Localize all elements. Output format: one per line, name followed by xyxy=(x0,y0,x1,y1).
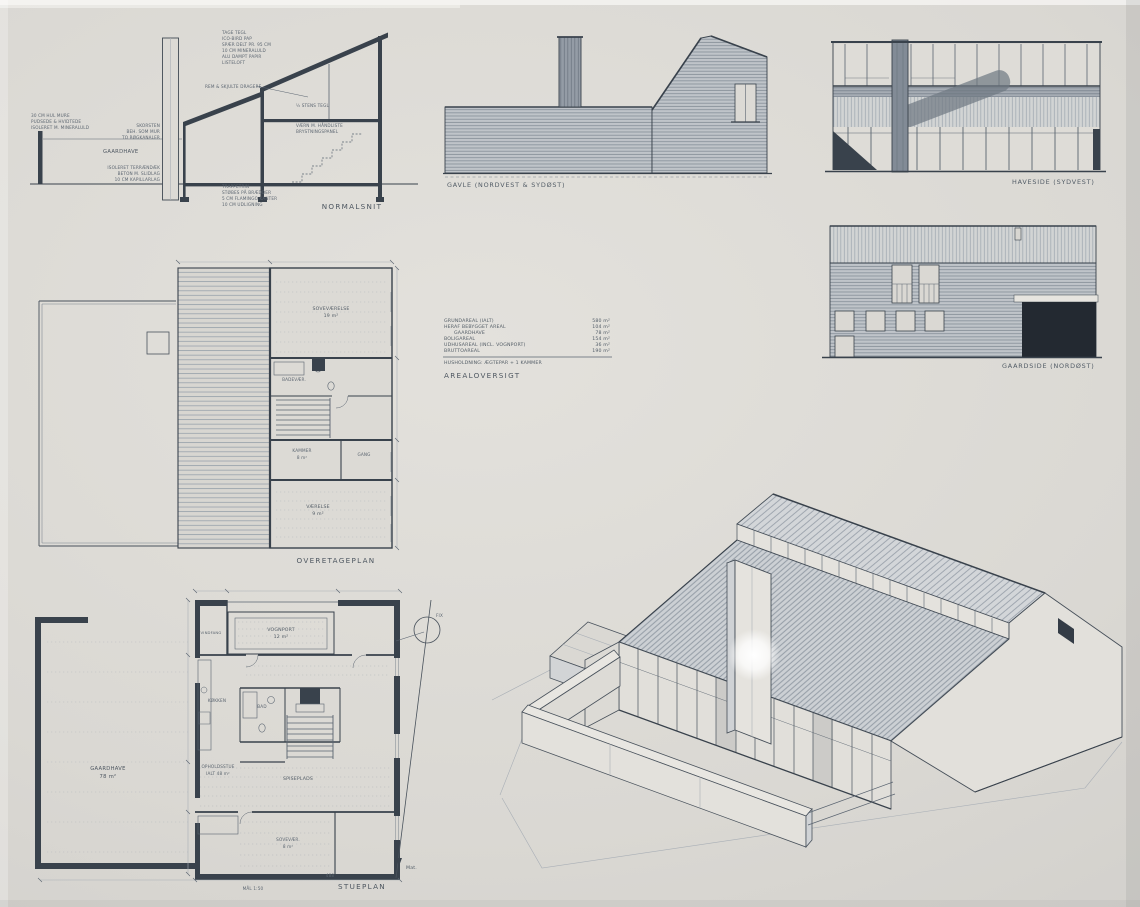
wardrobe xyxy=(198,816,238,834)
note-chimney-1: SKORSTEN xyxy=(136,123,160,128)
table-row: BRUTTOAREAL 190 m² xyxy=(444,348,610,354)
note-stair-1: TRAPPETRIN xyxy=(221,184,249,189)
drawing-title-gavle: GAVLE (NORDVEST & SYDØST) xyxy=(447,181,565,189)
note-leftwall-3: ISOLERET M. MINERALULD xyxy=(31,125,89,130)
note-roof-4: 10 CM MINERALULD xyxy=(222,48,266,53)
chimney-plan-upper xyxy=(312,359,325,371)
svg-text:19 m²: 19 m² xyxy=(324,313,339,319)
svg-text:580 m²: 580 m² xyxy=(592,318,610,324)
svg-text:GAARDHAVE: GAARDHAVE xyxy=(454,330,485,336)
scale-note: MÅL 1:50 xyxy=(243,886,264,891)
room-koekken: KØKKEN xyxy=(208,698,226,703)
svg-text:78 m²: 78 m² xyxy=(100,774,117,780)
floor-plan-stue: GAARDHAVE 78 m² VOGNPORT 12 m² VINDFANG … xyxy=(35,589,443,891)
room-spiseplads: SPISEPLADS xyxy=(283,776,313,782)
toilet-stue xyxy=(259,724,265,732)
svg-text:36 m²: 36 m² xyxy=(595,342,610,348)
roof-plan-band xyxy=(178,268,270,548)
section-drawing-normalsnit: TAGE TEGL ICO-BIRD PAP SPÆR DELT PR. 95 … xyxy=(30,30,418,211)
note-stair-2: STØBES PÅ BRÆDDER xyxy=(222,190,271,195)
svg-text:IALT 48 m²: IALT 48 m² xyxy=(206,771,230,776)
note-leftwall-2: PUDSEDE & HVIDTEDE xyxy=(31,119,81,124)
note-chimney-3: TO RØGKANALER xyxy=(121,135,160,140)
table-row: GAARDHAVE 78 m² xyxy=(454,330,610,336)
note-floor-3: 10 CM KAPILLARLAG xyxy=(115,177,160,182)
note-chimney-2: BEH. SOM MUR xyxy=(126,129,160,134)
board-svg: TAGE TEGL ICO-BIRD PAP SPÆR DELT PR. 95 … xyxy=(0,0,1140,907)
svg-text:104 m²: 104 m² xyxy=(592,324,610,330)
note-parapet-1: VÆRN M. HÅNDLISTE xyxy=(296,123,343,128)
stair-dashed-section xyxy=(292,134,362,182)
note-stair-3: 5 CM FLAMINGO KANTER xyxy=(222,196,277,201)
dimension-total: 488 xyxy=(326,873,335,878)
elevation-gavle: GAVLE (NORDVEST & SYDØST) xyxy=(443,36,772,189)
stair-treads-stue xyxy=(287,717,333,757)
note-floor-2: BETON M. SLIDLAG xyxy=(118,171,160,176)
note-roof-6: LISTELOFT xyxy=(222,60,245,65)
svg-text:BRUTTOAREAL: BRUTTOAREAL xyxy=(444,348,480,354)
room-badevaerelse: BADEVÆR. xyxy=(282,377,306,382)
gavle-low-wing xyxy=(445,107,652,173)
gaardside-upper-band xyxy=(830,226,1096,263)
room-kammer: KAMMER xyxy=(292,448,311,453)
table-row: HERAF BEBYGGET AREAL 104 m² xyxy=(444,324,610,330)
svg-text:8 m²: 8 m² xyxy=(297,455,308,460)
note-roof-3: SPÆR DELT PR. 95 CM xyxy=(222,42,271,47)
room-bad: BAD xyxy=(257,704,266,709)
elevation-gaardside: GAARDSIDE (NORDØST) xyxy=(822,226,1102,370)
svg-text:HERAF BEBYGGET AREAL: HERAF BEBYGGET AREAL xyxy=(444,324,506,330)
svg-text:BOLIGAREAL: BOLIGAREAL xyxy=(444,336,475,342)
note-leftwall-1: 30 CM HUL MURE xyxy=(31,113,70,118)
shower xyxy=(243,692,257,718)
note-roof-2: ICO-BIRD PAP xyxy=(222,36,252,41)
table-note: HUSHOLDNING: ÆGTEPAR + 1 KAMMER xyxy=(444,360,542,366)
room-vaerelse: VÆRELSE xyxy=(306,504,330,510)
section-annotations: TAGE TEGL ICO-BIRD PAP SPÆR DELT PR. 95 … xyxy=(31,30,343,207)
room-sovevaer: SOVEVÆR. xyxy=(276,837,300,842)
note-roof-5: ALU DAMPT PAPIR xyxy=(222,54,261,59)
drawing-title-overetageplan: OVERETAGEPLAN xyxy=(297,556,376,565)
drawing-title-gaardside: GAARDSIDE (NORDØST) xyxy=(1002,362,1095,370)
area-table: GRUNDAREAL (IALT) 580 m² HERAF BEBYGGET … xyxy=(443,318,612,380)
drawing-title-arealoversigt: AREALOVERSIGT xyxy=(444,371,520,380)
haveside-chimney xyxy=(892,40,908,172)
room-gaardhave: GAARDHAVE xyxy=(90,766,126,772)
carport-opening xyxy=(1022,302,1096,357)
fireplace-chimney-plan xyxy=(300,688,320,704)
room-opholdsstue: OPHOLDSSTUE xyxy=(201,764,234,769)
drawing-title-normalsnit: NORMALSNIT xyxy=(322,202,383,211)
table-row: GRUNDAREAL (IALT) 580 m² xyxy=(444,318,610,324)
room-gang: GANG xyxy=(357,452,370,457)
table-row: UDHUSAREAL (INCL. VOGNPORT) 36 m² xyxy=(444,342,610,348)
haveside-upper-windows xyxy=(833,44,1100,86)
drawing-title-stueplan: STUEPLAN xyxy=(338,882,386,891)
label-gaardhave-section: GAARDHAVE xyxy=(103,149,139,155)
svg-text:9 m²: 9 m² xyxy=(312,511,324,517)
drawing-title-haveside: HAVESIDE (SYDVEST) xyxy=(1012,178,1095,186)
svg-text:8 m²: 8 m² xyxy=(283,844,294,849)
courtyard-planter xyxy=(147,332,169,354)
note-roof-1: TAGE TEGL xyxy=(221,30,247,35)
architectural-presentation-board: TAGE TEGL ICO-BIRD PAP SPÆR DELT PR. 95 … xyxy=(0,0,1140,907)
svg-text:190 m²: 190 m² xyxy=(592,348,610,354)
fixpoint-label: FIX xyxy=(436,613,443,618)
room-vognport: VOGNPORT xyxy=(267,627,294,633)
gaardside-vent xyxy=(1015,228,1021,240)
haveside-glazing xyxy=(833,127,1100,170)
note-wall: ½ STENS TEGL xyxy=(296,103,329,108)
room-sovevaerelse: SOVEVÆRELSE xyxy=(313,306,350,312)
svg-text:12 m²: 12 m² xyxy=(274,634,289,640)
carport-lintel xyxy=(1014,295,1098,302)
hearth xyxy=(296,704,324,712)
svg-text:78 m²: 78 m² xyxy=(595,330,610,336)
basin-stue xyxy=(268,697,275,704)
note-stair-4: 10 CM UDLIGNING xyxy=(222,202,263,207)
svg-text:GRUNDAREAL (IALT): GRUNDAREAL (IALT) xyxy=(444,318,494,324)
note-parapet-2: BRYSTNINGSPANEL xyxy=(296,129,339,134)
svg-text:154 m²: 154 m² xyxy=(592,336,610,342)
roof-upper-slope xyxy=(260,33,388,94)
table-row: BOLIGAREAL 154 m² xyxy=(444,336,610,342)
gavle-chimney xyxy=(559,37,581,107)
property-line xyxy=(396,600,431,878)
roof-lower-slope xyxy=(183,92,262,128)
photo-flash-reflection xyxy=(728,629,780,681)
floor-plan-overetage: SOVEVÆRELSE 19 m² BADEVÆR. KAMMER 8 m² G… xyxy=(39,260,399,565)
axonometric-view xyxy=(492,494,1122,868)
svg-text:UDHUSAREAL (INCL. VOGNPORT): UDHUSAREAL (INCL. VOGNPORT) xyxy=(444,342,526,348)
note-floor-1: ISOLERET TERRÆNDÆK xyxy=(107,165,160,170)
note-beam: REM & SKJULTE DRAGERE xyxy=(205,84,262,89)
elevation-haveside: HAVESIDE (SYDVEST) xyxy=(825,40,1106,186)
room-vindfang: VINDFANG xyxy=(201,630,222,635)
garden-wall-section xyxy=(38,131,43,184)
vognport-outline xyxy=(228,612,334,654)
mat-label: Mat. xyxy=(406,865,417,871)
